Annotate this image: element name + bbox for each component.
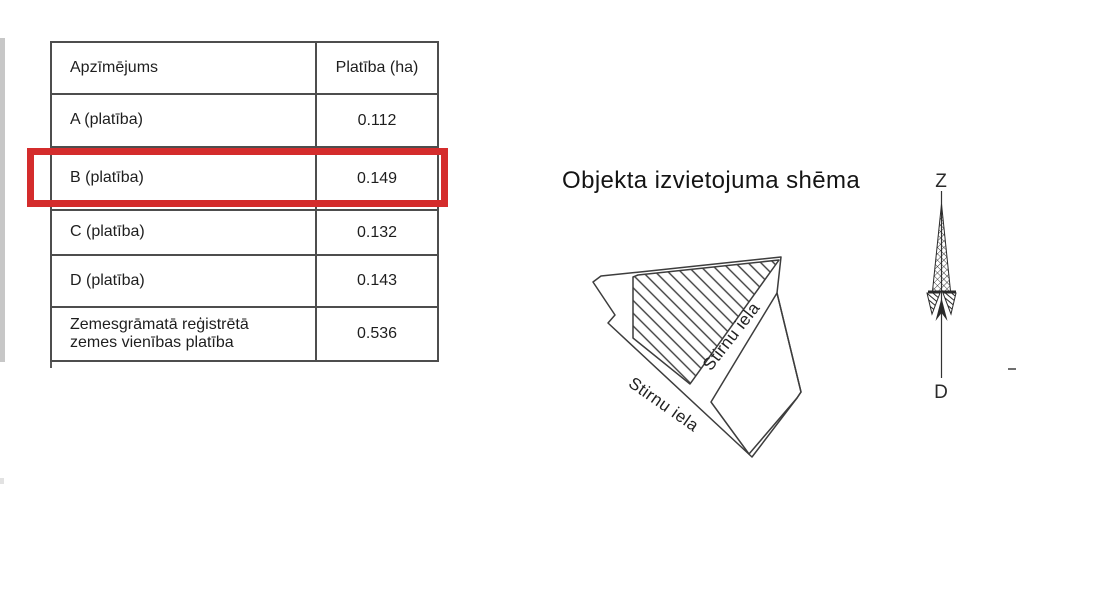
row-value: 0.143: [316, 255, 438, 307]
table-row-registered-area: Zemesgrāmatā reģistrētā zemes vienības p…: [51, 307, 438, 361]
location-scheme-map: Stirnu iela Stirnu iela: [583, 244, 913, 469]
row-label: Zemesgrāmatā reģistrētā zemes vienības p…: [51, 307, 316, 361]
scan-speck: [0, 478, 4, 484]
row-label: A (platība): [51, 94, 316, 147]
compass-right-wing: [943, 293, 956, 314]
scheme-title: Objekta izvietojuma shēma: [562, 167, 860, 195]
compass-north-label: Z: [935, 171, 947, 192]
table-row-c: C (platība) 0.132: [51, 210, 438, 255]
document-page: Apzīmējums Platība (ha) A (platība) 0.11…: [0, 0, 1119, 603]
table-row-d: D (platība) 0.143: [51, 255, 438, 307]
col-header-area: Platība (ha): [316, 42, 438, 94]
compass-spire: [933, 204, 951, 291]
table-header-row: Apzīmējums Platība (ha): [51, 42, 438, 94]
table-row-a: A (platība) 0.112: [51, 94, 438, 147]
row-label: D (platība): [51, 255, 316, 307]
row-value: 0.112: [316, 94, 438, 147]
row-value: 0.536: [316, 307, 438, 361]
col-header-designation: Apzīmējums: [51, 42, 316, 94]
scan-edge-artifact: [0, 38, 5, 362]
compass-left-wing: [927, 293, 940, 314]
row-value: 0.132: [316, 210, 438, 255]
highlight-box-row-b: [27, 148, 448, 207]
north-arrow-compass: Z D: [912, 158, 972, 408]
compass-south-label: D: [934, 382, 948, 403]
stray-mark: [1008, 368, 1016, 370]
row-label: C (platība): [51, 210, 316, 255]
